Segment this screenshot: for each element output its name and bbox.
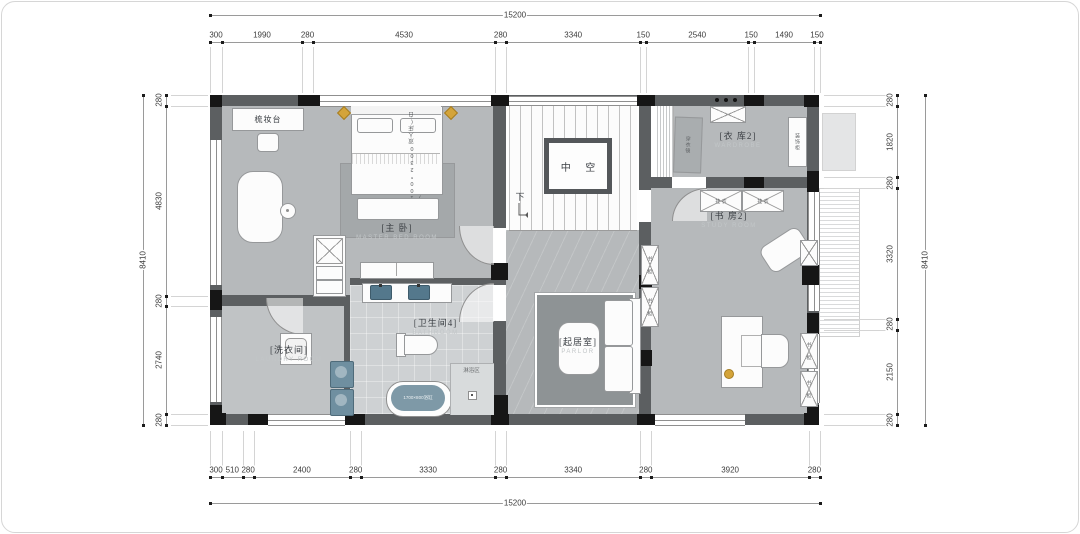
dim-label: 300 (208, 466, 223, 475)
dim-label: 280 (155, 412, 164, 427)
dim-extension (820, 47, 821, 93)
dim-tick (165, 305, 168, 308)
dim-label: 280 (493, 466, 508, 475)
dim-label: 280 (155, 93, 164, 108)
dim-tick (165, 413, 168, 416)
dim-extension (824, 330, 892, 331)
dim-tick (349, 476, 352, 479)
dim-label: 280 (493, 31, 508, 40)
dim-label: 280 (155, 293, 164, 308)
dim-tick (312, 41, 315, 44)
dim-label: 2150 (886, 362, 895, 382)
dim-chain-line (210, 477, 820, 478)
dim-tick (639, 41, 642, 44)
dim-overall-label: 15200 (503, 499, 527, 508)
dim-extension (171, 306, 208, 307)
dim-extension (171, 95, 208, 96)
dim-label: 2740 (155, 350, 164, 370)
dim-tick (896, 187, 899, 190)
dim-extension (640, 47, 641, 93)
dim-label: 280 (886, 175, 895, 190)
dim-label: 280 (300, 31, 315, 40)
dim-label: 150 (743, 31, 758, 40)
dim-label: 3340 (563, 31, 583, 40)
dim-tick (165, 424, 168, 427)
dim-extension (171, 296, 208, 297)
dim-tick (165, 94, 168, 97)
dim-extension (171, 414, 208, 415)
dim-tick (505, 476, 508, 479)
dim-tick (896, 424, 899, 427)
dim-chain-line (166, 95, 167, 425)
dim-tick (165, 295, 168, 298)
dim-end (209, 502, 212, 505)
dim-label: 150 (636, 31, 651, 40)
dim-tick (645, 41, 648, 44)
dim-tick (505, 41, 508, 44)
dim-tick (896, 176, 899, 179)
dim-end (142, 424, 145, 427)
dim-end (142, 94, 145, 97)
dim-tick (896, 105, 899, 108)
dimension-layer: 3001990280453028033401502540150149015015… (0, 0, 1080, 534)
dim-extension (222, 47, 223, 93)
dim-tick (165, 105, 168, 108)
dim-label: 4530 (394, 31, 414, 40)
dim-tick (221, 476, 224, 479)
dim-tick (753, 41, 756, 44)
dim-extension (824, 188, 892, 189)
dim-tick (896, 329, 899, 332)
dim-label: 1990 (252, 31, 272, 40)
dim-label: 4830 (155, 191, 164, 211)
dim-extension (754, 47, 755, 93)
dim-label: 2400 (292, 466, 312, 475)
dim-tick (242, 476, 245, 479)
dim-chain-line (897, 95, 898, 425)
dim-label: 280 (886, 412, 895, 427)
dim-tick (494, 476, 497, 479)
dim-tick (747, 41, 750, 44)
dim-label: 280 (348, 466, 363, 475)
dim-tick (221, 41, 224, 44)
dim-end (924, 424, 927, 427)
dim-label: 280 (886, 93, 895, 108)
dim-end (209, 14, 212, 17)
dim-extension (824, 95, 892, 96)
dim-tick (896, 94, 899, 97)
dim-label: 3340 (563, 466, 583, 475)
dim-extension (646, 47, 647, 93)
dim-extension (506, 47, 507, 93)
dim-label: 3920 (720, 466, 740, 475)
dim-label: 300 (208, 31, 223, 40)
dim-end (819, 14, 822, 17)
dim-extension (313, 47, 314, 93)
dim-tick (819, 41, 822, 44)
dim-tick (808, 476, 811, 479)
dim-label: 3330 (418, 466, 438, 475)
dim-extension (210, 47, 211, 93)
dim-label: 510 (225, 466, 240, 475)
dim-label: 2540 (687, 31, 707, 40)
dim-label: 1820 (886, 132, 895, 152)
dim-label: 3320 (886, 244, 895, 264)
dim-tick (209, 41, 212, 44)
dim-overall-label: 8410 (139, 250, 148, 270)
dim-extension (824, 414, 892, 415)
dim-extension (495, 47, 496, 93)
dim-tick (209, 476, 212, 479)
dim-tick (813, 41, 816, 44)
dim-overall-label: 15200 (503, 11, 527, 20)
dim-tick (896, 318, 899, 321)
dim-tick (360, 476, 363, 479)
dim-tick (253, 476, 256, 479)
dim-tick (819, 476, 822, 479)
dim-tick (650, 476, 653, 479)
dim-tick (494, 41, 497, 44)
dim-extension (171, 106, 208, 107)
dim-label: 1490 (774, 31, 794, 40)
dim-tick (639, 476, 642, 479)
dim-extension (814, 47, 815, 93)
dim-extension (824, 106, 892, 107)
floorplan-canvas: 中 空 下 (0, 0, 1080, 534)
dim-end (924, 94, 927, 97)
dim-extension (748, 47, 749, 93)
dim-extension (824, 177, 892, 178)
dim-extension (824, 425, 892, 426)
dim-label: 150 (809, 31, 824, 40)
dim-overall-label: 8410 (921, 250, 930, 270)
dim-label: 280 (807, 466, 822, 475)
dim-label: 280 (638, 466, 653, 475)
dim-label: 280 (886, 316, 895, 331)
dim-extension (302, 47, 303, 93)
dim-extension (824, 319, 892, 320)
dim-tick (896, 413, 899, 416)
dim-label: 280 (240, 466, 255, 475)
dim-tick (301, 41, 304, 44)
dim-extension (171, 425, 208, 426)
dim-end (819, 502, 822, 505)
